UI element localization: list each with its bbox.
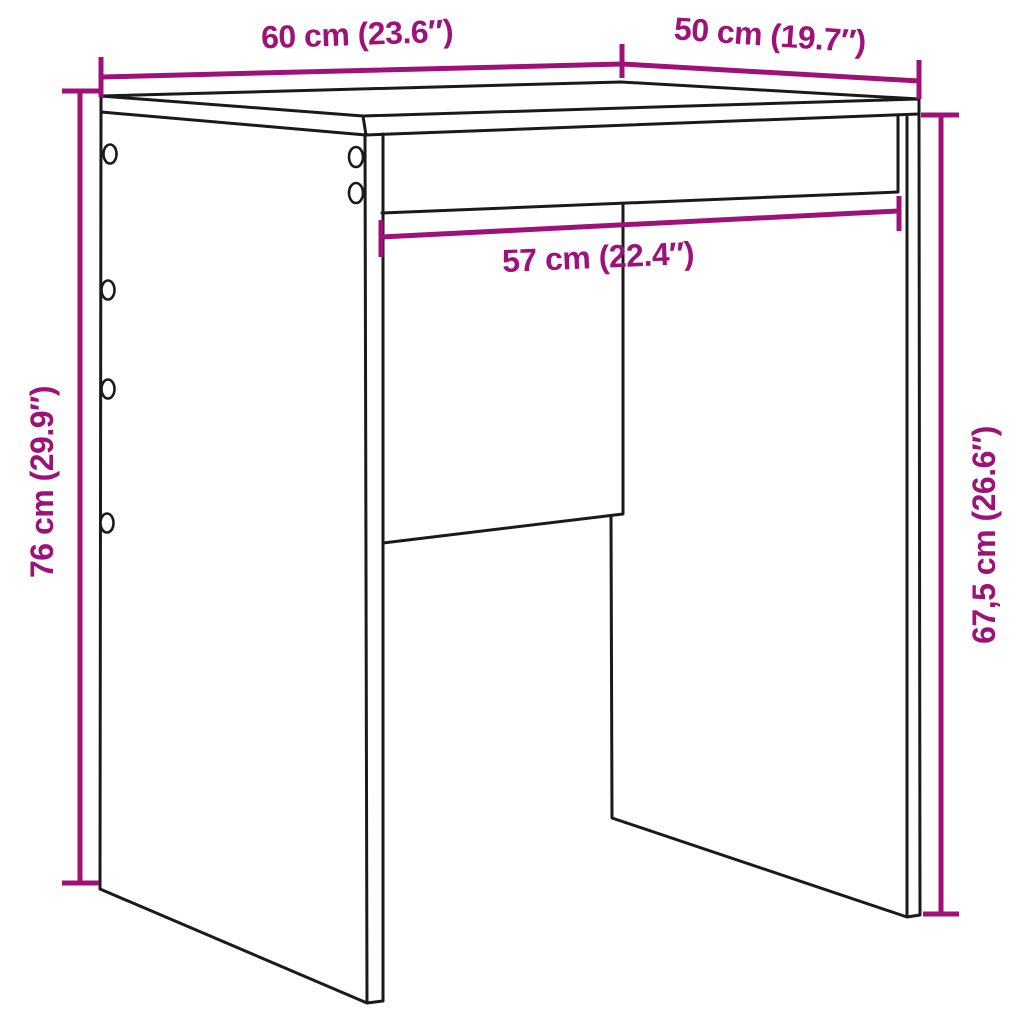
dimension-annotations: 60 cm (23.6″) 50 cm (19.7″) 57 cm (22.4″… [24,10,1002,914]
dimension-label-inner-height: 67,5 cm (26.6″) [966,426,1002,644]
furniture-outline [100,82,920,1003]
dimension-label-inner-width: 57 cm (22.4″) [501,235,694,279]
dimension-inner-height: 67,5 cm (26.6″) [921,115,1002,914]
right-side-panel [611,114,920,917]
dimension-label-overall-height: 76 cm (29.9″) [24,386,60,578]
screw-holes [101,145,364,533]
dimension-label-top-width: 60 cm (23.6″) [260,13,453,56]
screw-hole [349,147,363,167]
screw-hole [102,281,115,300]
screw-hole [104,145,117,164]
screw-hole [101,514,114,533]
dimension-overall-height: 76 cm (29.9″) [24,91,100,883]
seat-top [101,82,919,135]
furniture-dimension-drawing: 60 cm (23.6″) 50 cm (19.7″) 57 cm (22.4″… [0,0,1024,1024]
dimension-line-overall-height [62,91,100,883]
dimension-label-top-depth: 50 cm (19.7″) [673,10,867,59]
dimension-line-top-depth [622,60,919,99]
screw-hole [102,380,115,399]
front-apron [382,115,898,213]
dimension-line-inner-height [921,115,959,914]
left-side-panel [100,112,383,1003]
dimension-diagram: 60 cm (23.6″) 50 cm (19.7″) 57 cm (22.4″… [0,0,1024,1024]
screw-hole [349,183,363,203]
